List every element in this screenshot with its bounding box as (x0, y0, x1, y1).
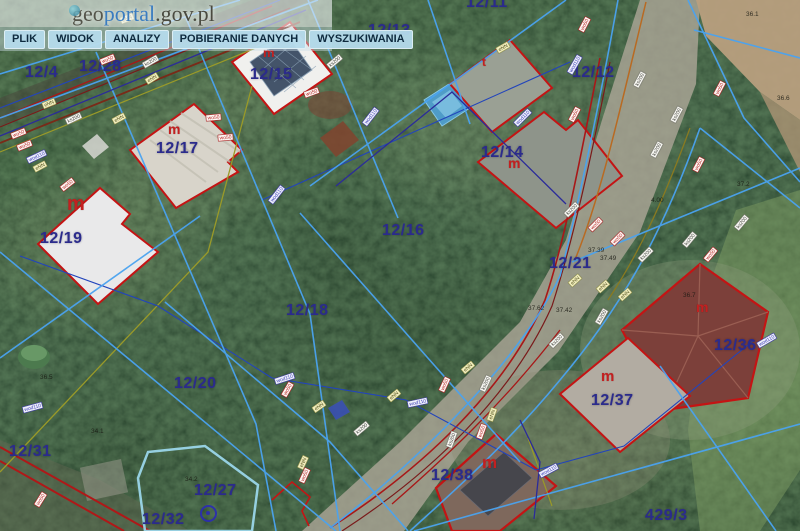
menu-item-pobieranie-danych[interactable]: POBIERANIE DANYCH (172, 30, 307, 49)
elevation-label: 36.6 (777, 94, 790, 101)
elevation-label: 37.42 (556, 306, 572, 313)
parcel-label: 429/3 (645, 507, 688, 525)
parcel-label: 12/18 (286, 302, 329, 320)
parcel-label: 12/17 (156, 140, 199, 158)
elevation-label: 4.00 (651, 196, 664, 203)
geoportal-logo[interactable]: geoportal.gov.pl (72, 1, 215, 27)
parcel-label: 12/37 (591, 392, 634, 410)
elevation-label: 37.39 (588, 246, 604, 253)
logo-text-portal: portal (104, 1, 155, 26)
tank-top (21, 345, 47, 361)
elevation-label: 34.1 (91, 427, 104, 434)
parcel-label: 12/16 (382, 222, 425, 240)
map-viewport[interactable]: 12/4 12/28 12/15 12/13 12/11 12/12 12/17… (0, 0, 800, 531)
map-overlay-graphics (0, 0, 800, 531)
point-marker-12-27 (200, 505, 217, 522)
brown-patch (308, 91, 352, 119)
utility-label: wo50 (206, 113, 222, 121)
menu-item-widok[interactable]: WIDOK (48, 30, 102, 49)
elevation-label: 34.2 (185, 475, 198, 482)
elevation-label: 37.62 (528, 304, 544, 311)
building-label: m (601, 368, 614, 385)
parcel-label: 12/19 (40, 230, 83, 248)
parcel-label: 12/11 (466, 0, 508, 12)
parcel-label: 12/15 (250, 66, 293, 84)
menu-item-plik[interactable]: PLIK (4, 30, 45, 49)
globe-icon (69, 5, 80, 16)
building-label: m (508, 155, 520, 171)
parcel-label: 12/32 (142, 511, 185, 529)
building-label: m (696, 299, 708, 315)
parcel-label: 12/4 (25, 64, 58, 82)
building-label: m (168, 121, 180, 137)
parcel-label: 12/36 (714, 337, 757, 355)
utility-label: wo50 (218, 133, 234, 141)
parcel-label: 12/12 (572, 64, 615, 82)
logo-text-suffix: .gov.pl (155, 1, 215, 26)
parcel-label: 12/31 (9, 443, 52, 461)
main-menu: PLIK WIDOK ANALIZY POBIERANIE DANYCH WYS… (4, 30, 413, 49)
parcel-label: 12/20 (174, 375, 217, 393)
parcel-label: 12/38 (431, 467, 474, 485)
parcel-label: 12/27 (194, 482, 237, 500)
menu-item-wyszukiwania[interactable]: WYSZUKIWANIA (309, 30, 412, 49)
elevation-label: 36.7 (683, 291, 696, 298)
elevation-label: 36.1 (746, 10, 759, 17)
elevation-label: 36.5 (40, 373, 53, 380)
parcel-label: 12/21 (549, 255, 592, 273)
building-label: t (482, 55, 486, 69)
building-label: m (67, 193, 85, 216)
elevation-label: 37.49 (600, 254, 616, 261)
menu-item-analizy[interactable]: ANALIZY (105, 30, 169, 49)
building-label: m (482, 453, 497, 473)
elevation-label: 37.2 (737, 180, 750, 187)
